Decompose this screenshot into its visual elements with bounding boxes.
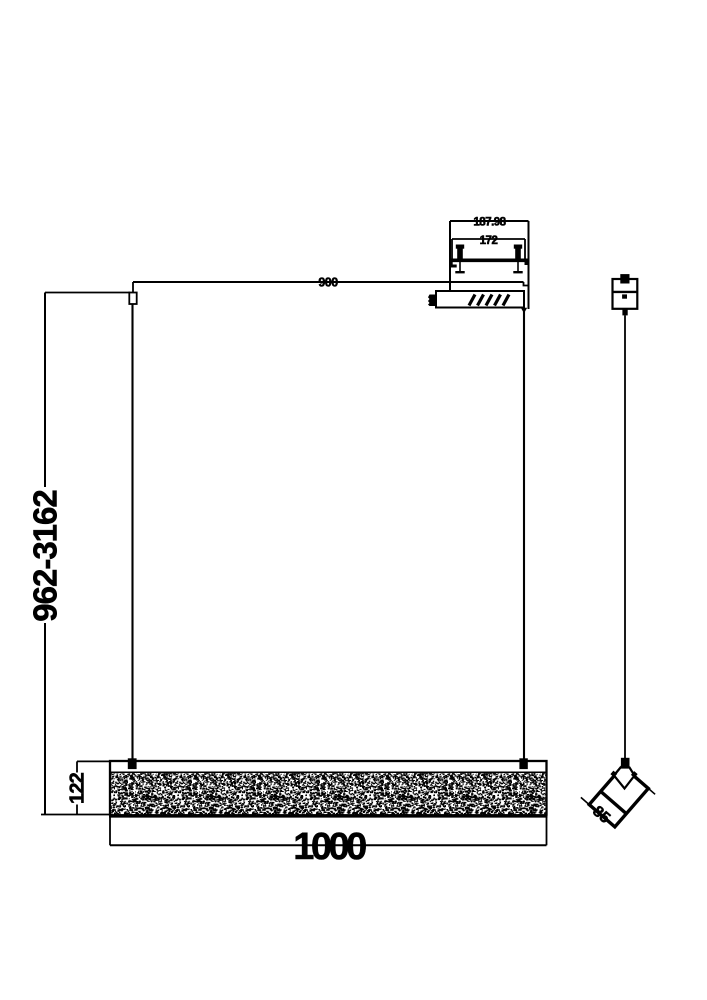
- svg-text:122: 122: [67, 772, 89, 804]
- svg-text:962-3162: 962-3162: [27, 490, 64, 622]
- svg-text:172: 172: [480, 235, 498, 247]
- svg-text:1000: 1000: [293, 826, 366, 868]
- svg-text:187.98: 187.98: [473, 217, 506, 229]
- svg-text:900: 900: [318, 276, 338, 290]
